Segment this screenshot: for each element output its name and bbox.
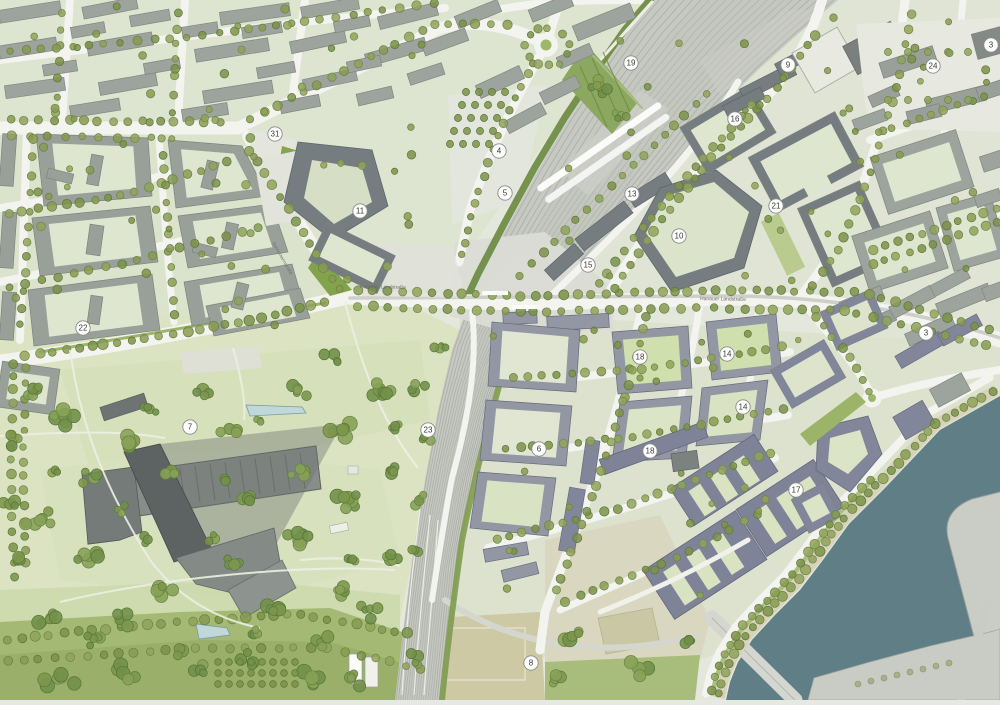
svg-text:11: 11 [356,207,365,216]
svg-text:13: 13 [628,190,637,199]
svg-text:3: 3 [989,41,994,50]
svg-text:Hanauer Landstraße: Hanauer Landstraße [700,296,746,303]
svg-text:16: 16 [731,115,740,124]
svg-text:19: 19 [627,59,636,68]
svg-text:21: 21 [772,202,781,211]
svg-text:6: 6 [537,445,542,454]
svg-text:8: 8 [529,659,534,668]
svg-text:4: 4 [497,147,502,156]
svg-text:18: 18 [646,447,655,456]
svg-text:18: 18 [636,353,645,362]
svg-text:3: 3 [924,329,929,338]
svg-text:24: 24 [929,62,938,71]
svg-text:17: 17 [792,486,801,495]
svg-text:15: 15 [584,261,593,270]
svg-text:23: 23 [424,426,433,435]
svg-text:Hanauer Landstraße: Hanauer Landstraße [360,284,406,291]
svg-text:9: 9 [786,61,791,70]
svg-text:14: 14 [739,403,748,412]
svg-text:14: 14 [723,350,732,359]
svg-text:5: 5 [503,189,508,198]
svg-text:7: 7 [188,423,193,432]
svg-text:22: 22 [79,324,88,333]
svg-text:10: 10 [675,232,684,241]
svg-text:31: 31 [271,130,280,139]
